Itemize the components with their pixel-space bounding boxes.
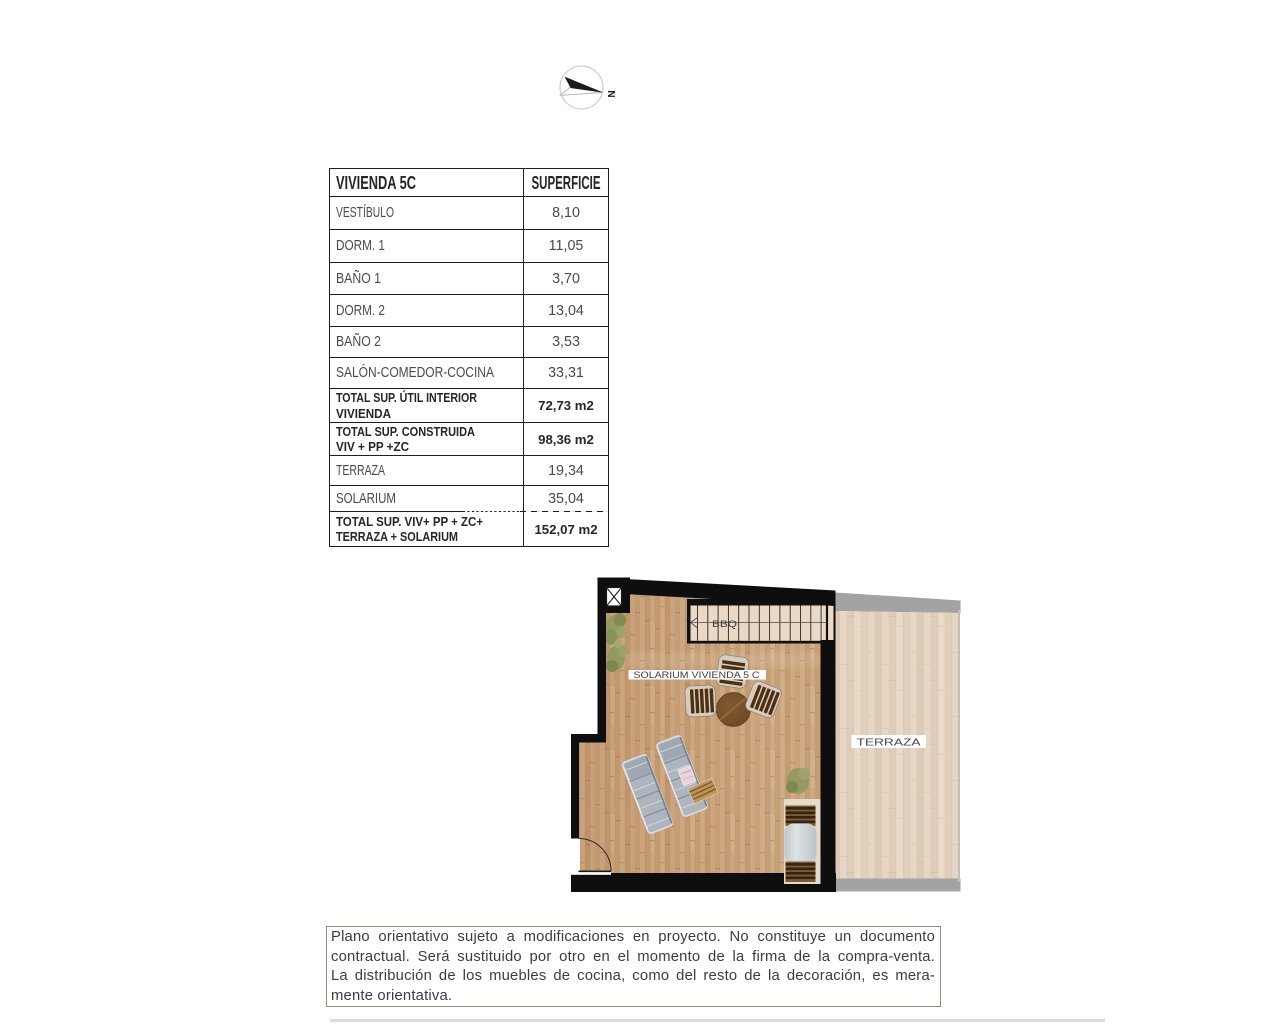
svg-text:BBQ: BBQ [712,619,737,630]
svg-text:SOLARIUM VIVIENDA 5 C: SOLARIUM VIVIENDA 5 C [634,670,760,681]
svg-text:N: N [605,90,616,97]
svg-text:TERRAZA: TERRAZA [857,736,921,748]
